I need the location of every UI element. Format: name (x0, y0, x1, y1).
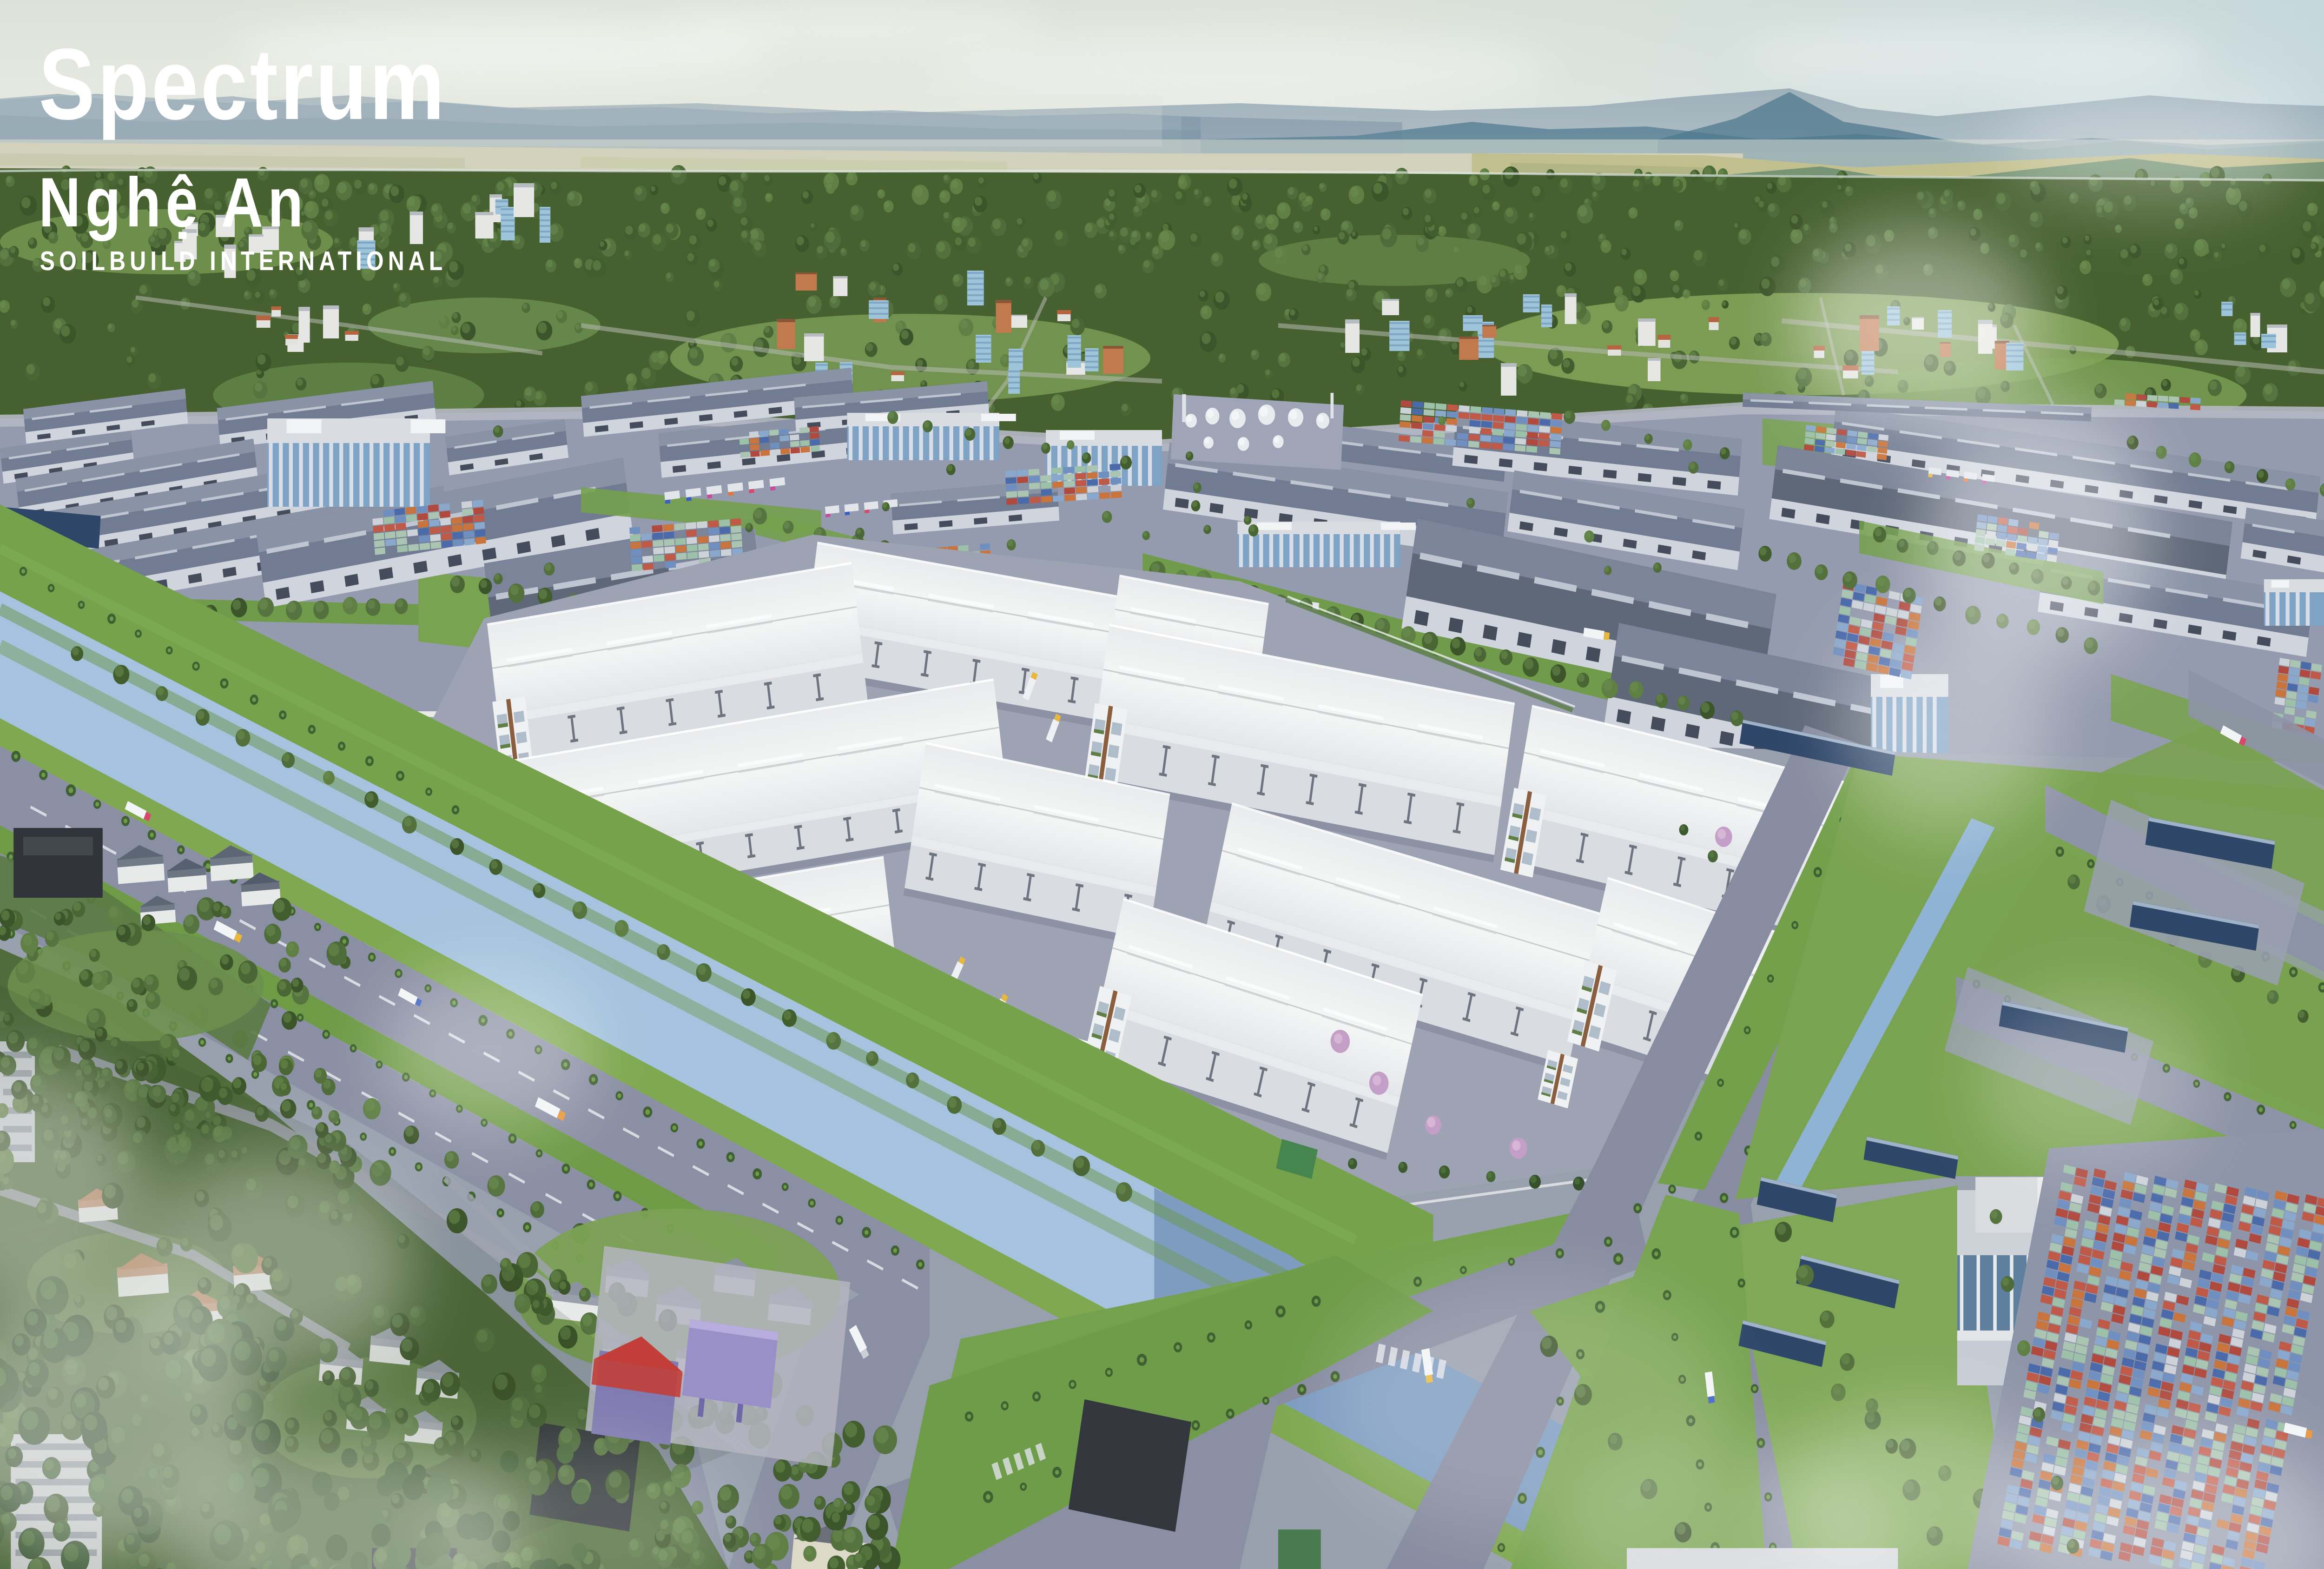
svg-text:Spectrum: Spectrum (39, 27, 447, 140)
svg-text:Nghệ An: Nghệ An (39, 163, 308, 241)
svg-text:SOILBUILD INTERNATIONAL: SOILBUILD INTERNATIONAL (40, 246, 447, 276)
